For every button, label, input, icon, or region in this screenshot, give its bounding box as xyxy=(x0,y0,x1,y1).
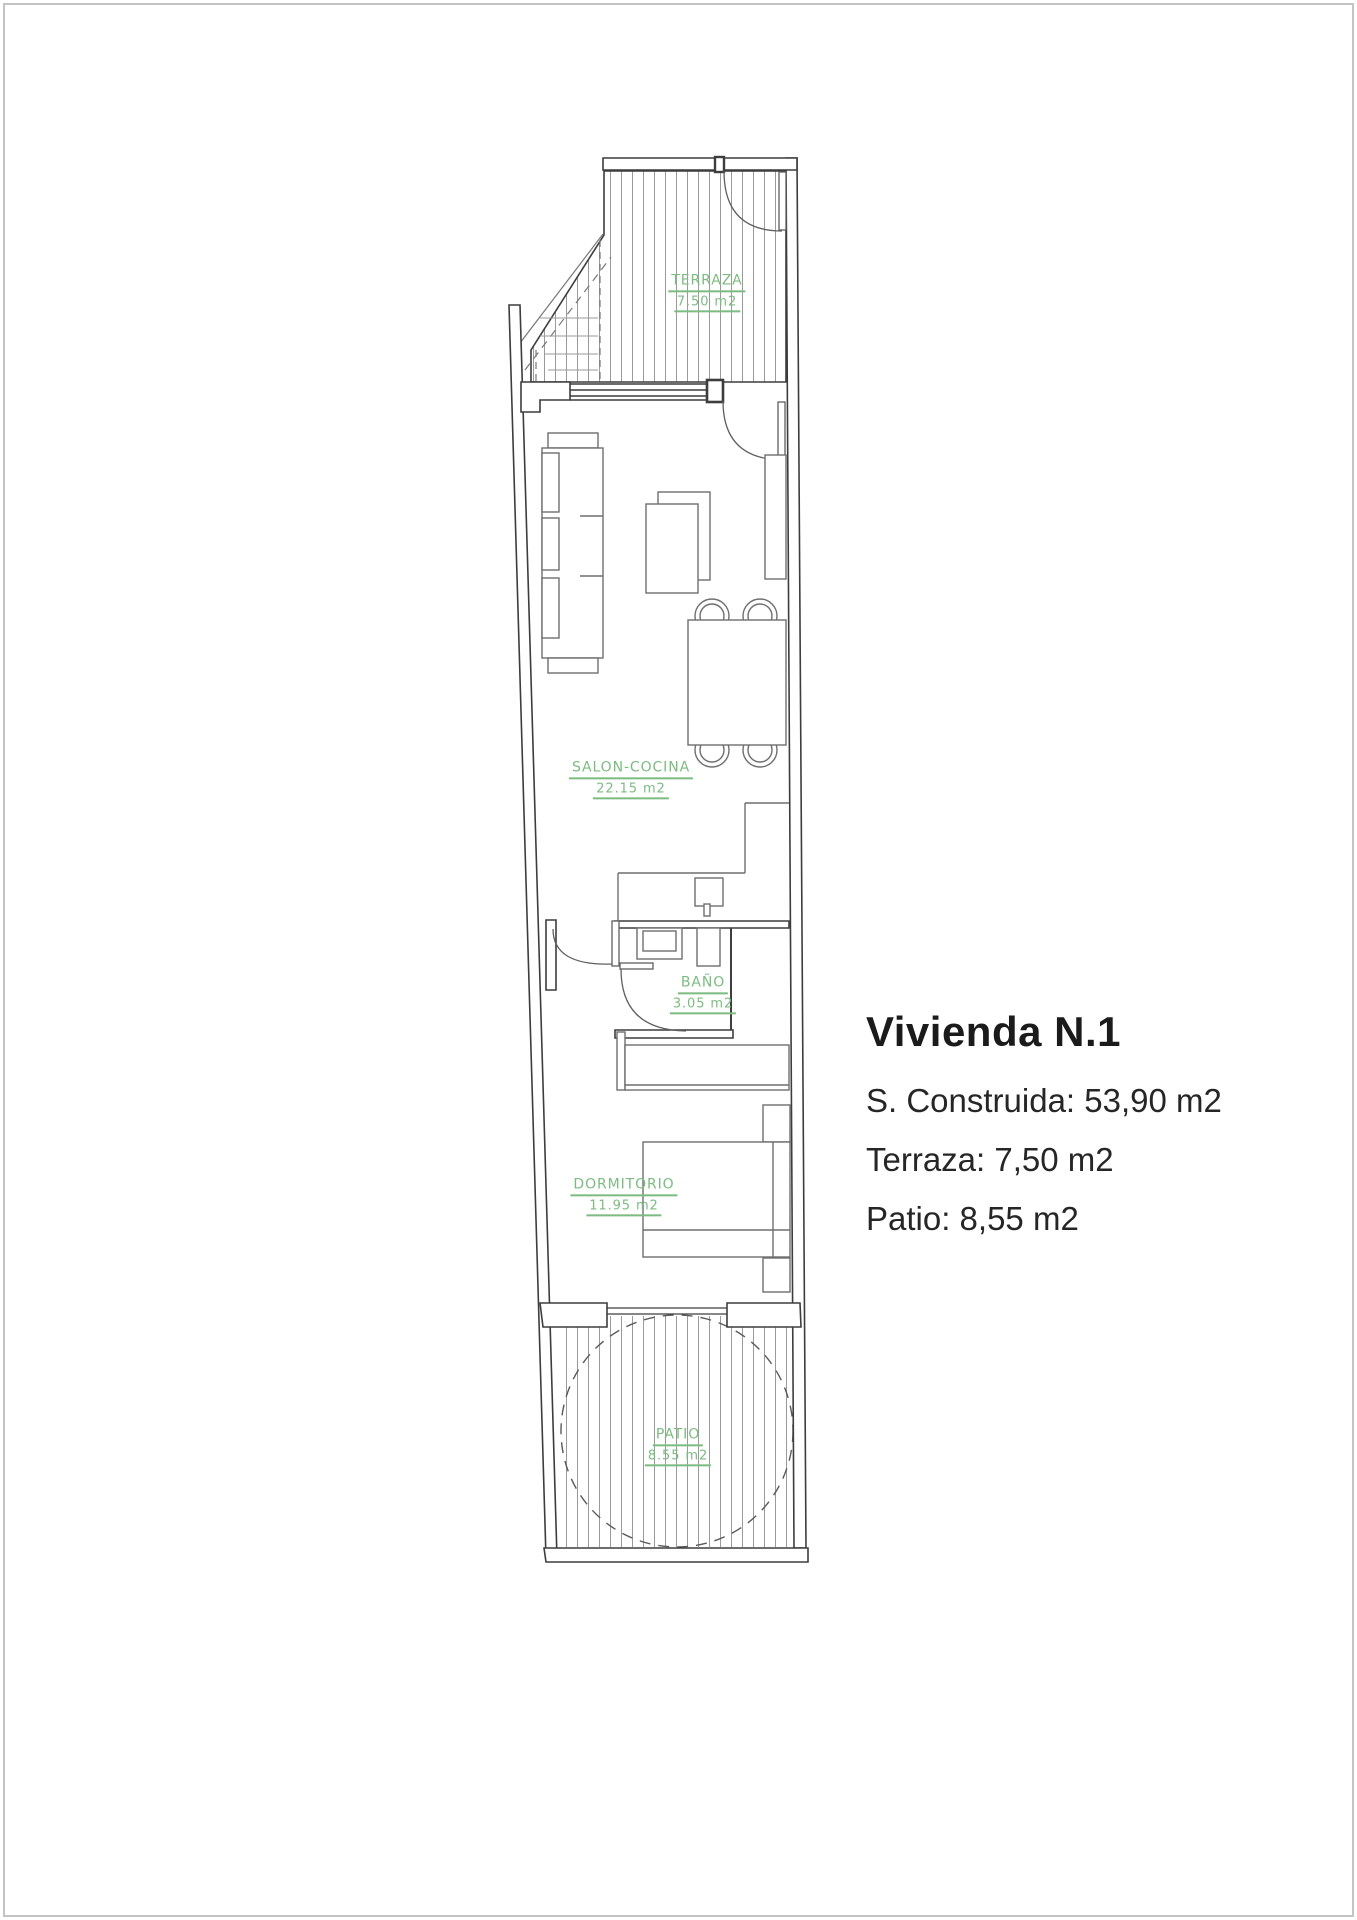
info-line-terraza: Terraza: 7,50 m2 xyxy=(866,1141,1222,1179)
room-name: SALON-COCINA xyxy=(569,760,693,779)
room-label-terraza: TERRAZA 7.50 m2 xyxy=(668,271,745,312)
room-label-patio: PATIO 8.55 m2 xyxy=(645,1425,711,1466)
info-line-patio: Patio: 8,55 m2 xyxy=(866,1200,1222,1238)
terrace-deck-hatch xyxy=(531,171,786,382)
plan-title: Vivienda N.1 xyxy=(866,1008,1222,1056)
room-name: TERRAZA xyxy=(668,273,745,292)
kitchen-counter xyxy=(618,803,789,921)
armchair xyxy=(646,492,710,593)
room-name: DORMITORIO xyxy=(570,1177,677,1196)
room-label-salon-cocina: SALON-COCINA 22.15 m2 xyxy=(569,758,693,799)
toilet xyxy=(697,928,720,966)
dining-set xyxy=(688,599,786,767)
room-area: 11.95 m2 xyxy=(586,1199,661,1217)
sofa xyxy=(542,433,603,673)
room-label-dormitorio: DORMITORIO 11.95 m2 xyxy=(570,1175,677,1216)
room-area: 8.55 m2 xyxy=(645,1449,711,1467)
room-area: 7.50 m2 xyxy=(674,295,740,313)
kitchen-sink xyxy=(695,878,723,906)
room-label-bano: BAÑO 3.05 m2 xyxy=(670,973,736,1014)
nightstand xyxy=(763,1258,790,1292)
room-name: PATIO xyxy=(653,1427,703,1446)
info-block: Vivienda N.1 S. Construida: 53,90 m2 Ter… xyxy=(866,1008,1222,1259)
room-name: BAÑO xyxy=(678,975,728,994)
dining-table xyxy=(688,620,786,745)
page: TERRAZA 7.50 m2 SALON-COCINA 22.15 m2 BA… xyxy=(0,0,1357,1920)
room-area: 3.05 m2 xyxy=(670,997,736,1015)
furniture xyxy=(542,433,790,1292)
bathroom-fixtures xyxy=(637,928,720,966)
wardrobe xyxy=(617,1032,789,1090)
cabinet xyxy=(765,455,786,579)
info-line-construida: S. Construida: 53,90 m2 xyxy=(866,1082,1222,1120)
nightstand xyxy=(763,1105,790,1142)
room-area: 22.15 m2 xyxy=(593,782,668,800)
